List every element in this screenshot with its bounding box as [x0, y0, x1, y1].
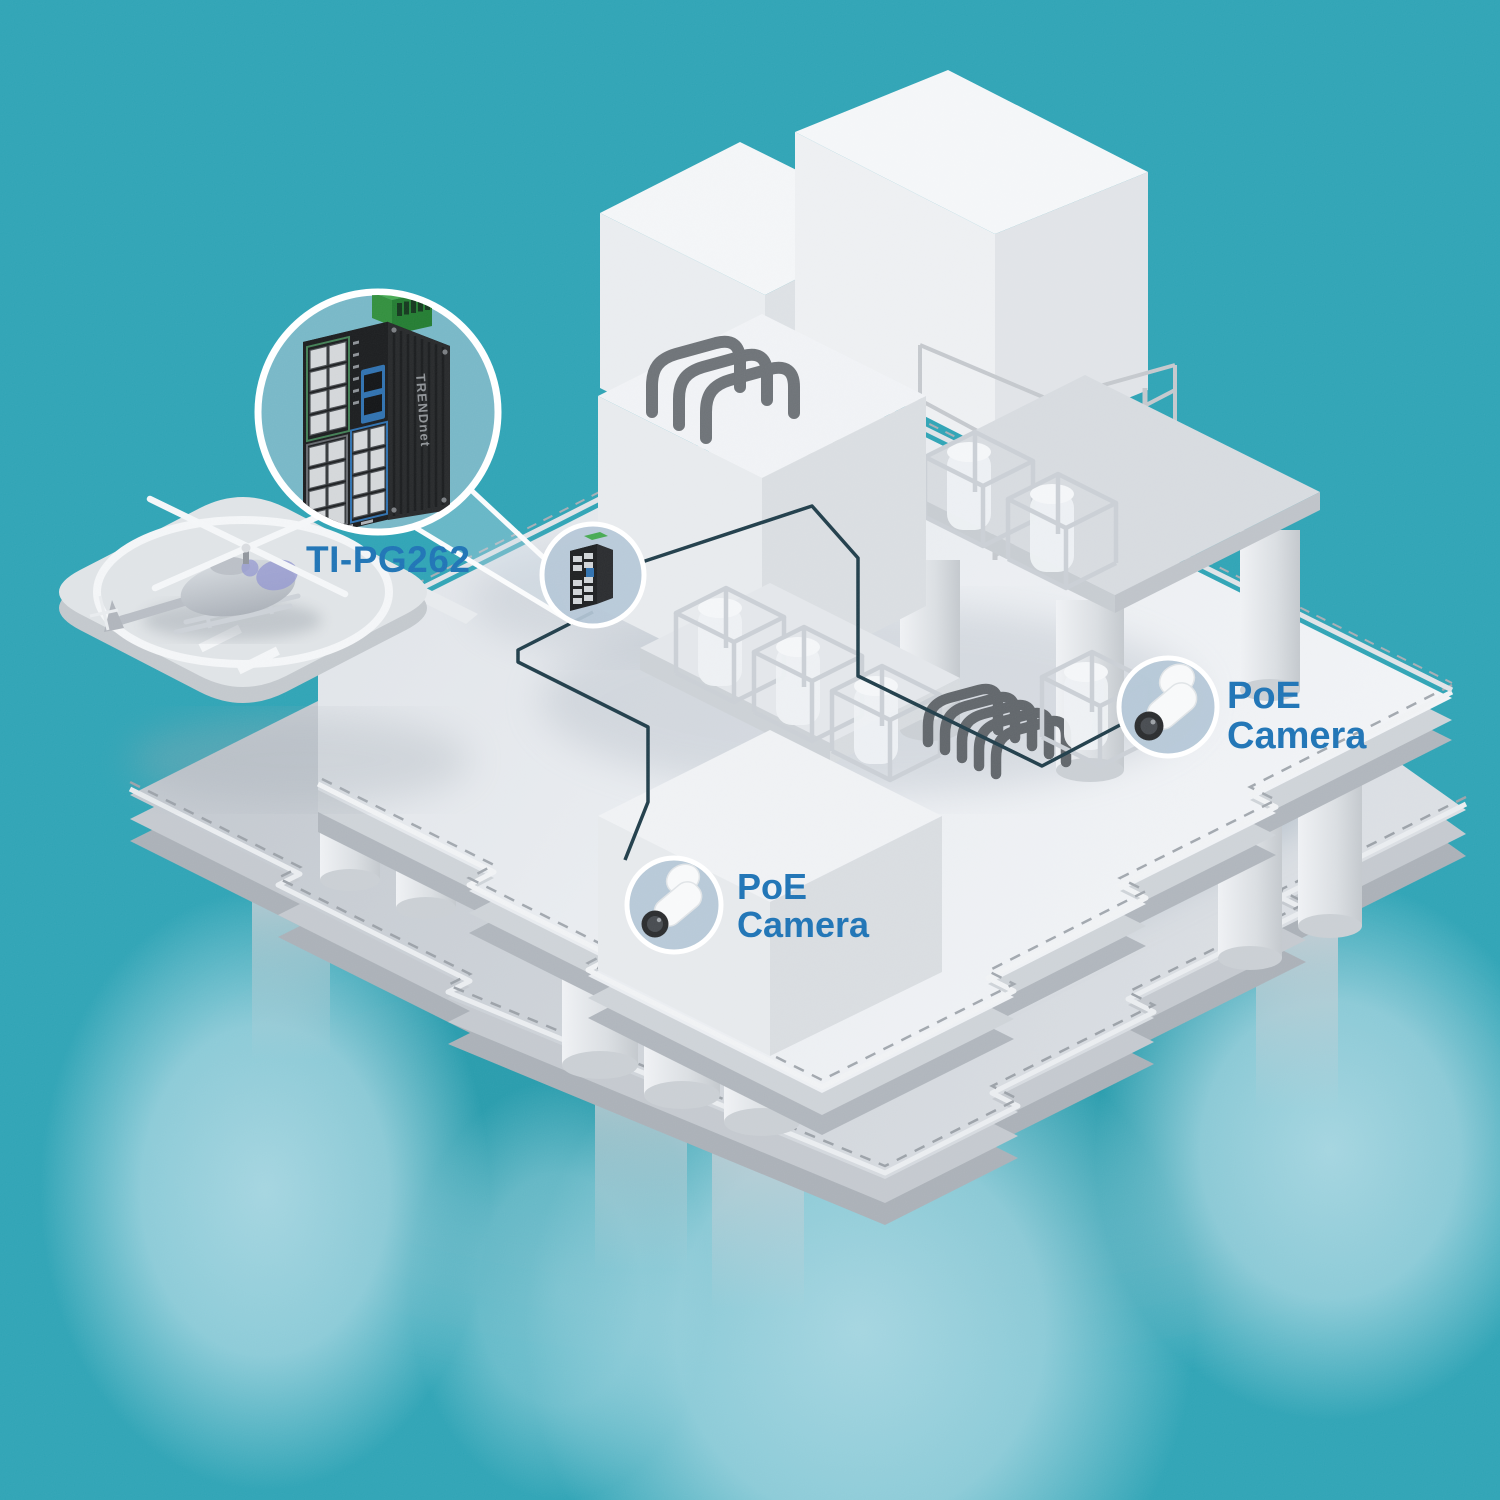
product-diagram: TRENDnet [0, 0, 1500, 1500]
grain-overlay [0, 0, 1500, 1500]
oil-rig-scene: TRENDnet [0, 0, 1500, 1500]
